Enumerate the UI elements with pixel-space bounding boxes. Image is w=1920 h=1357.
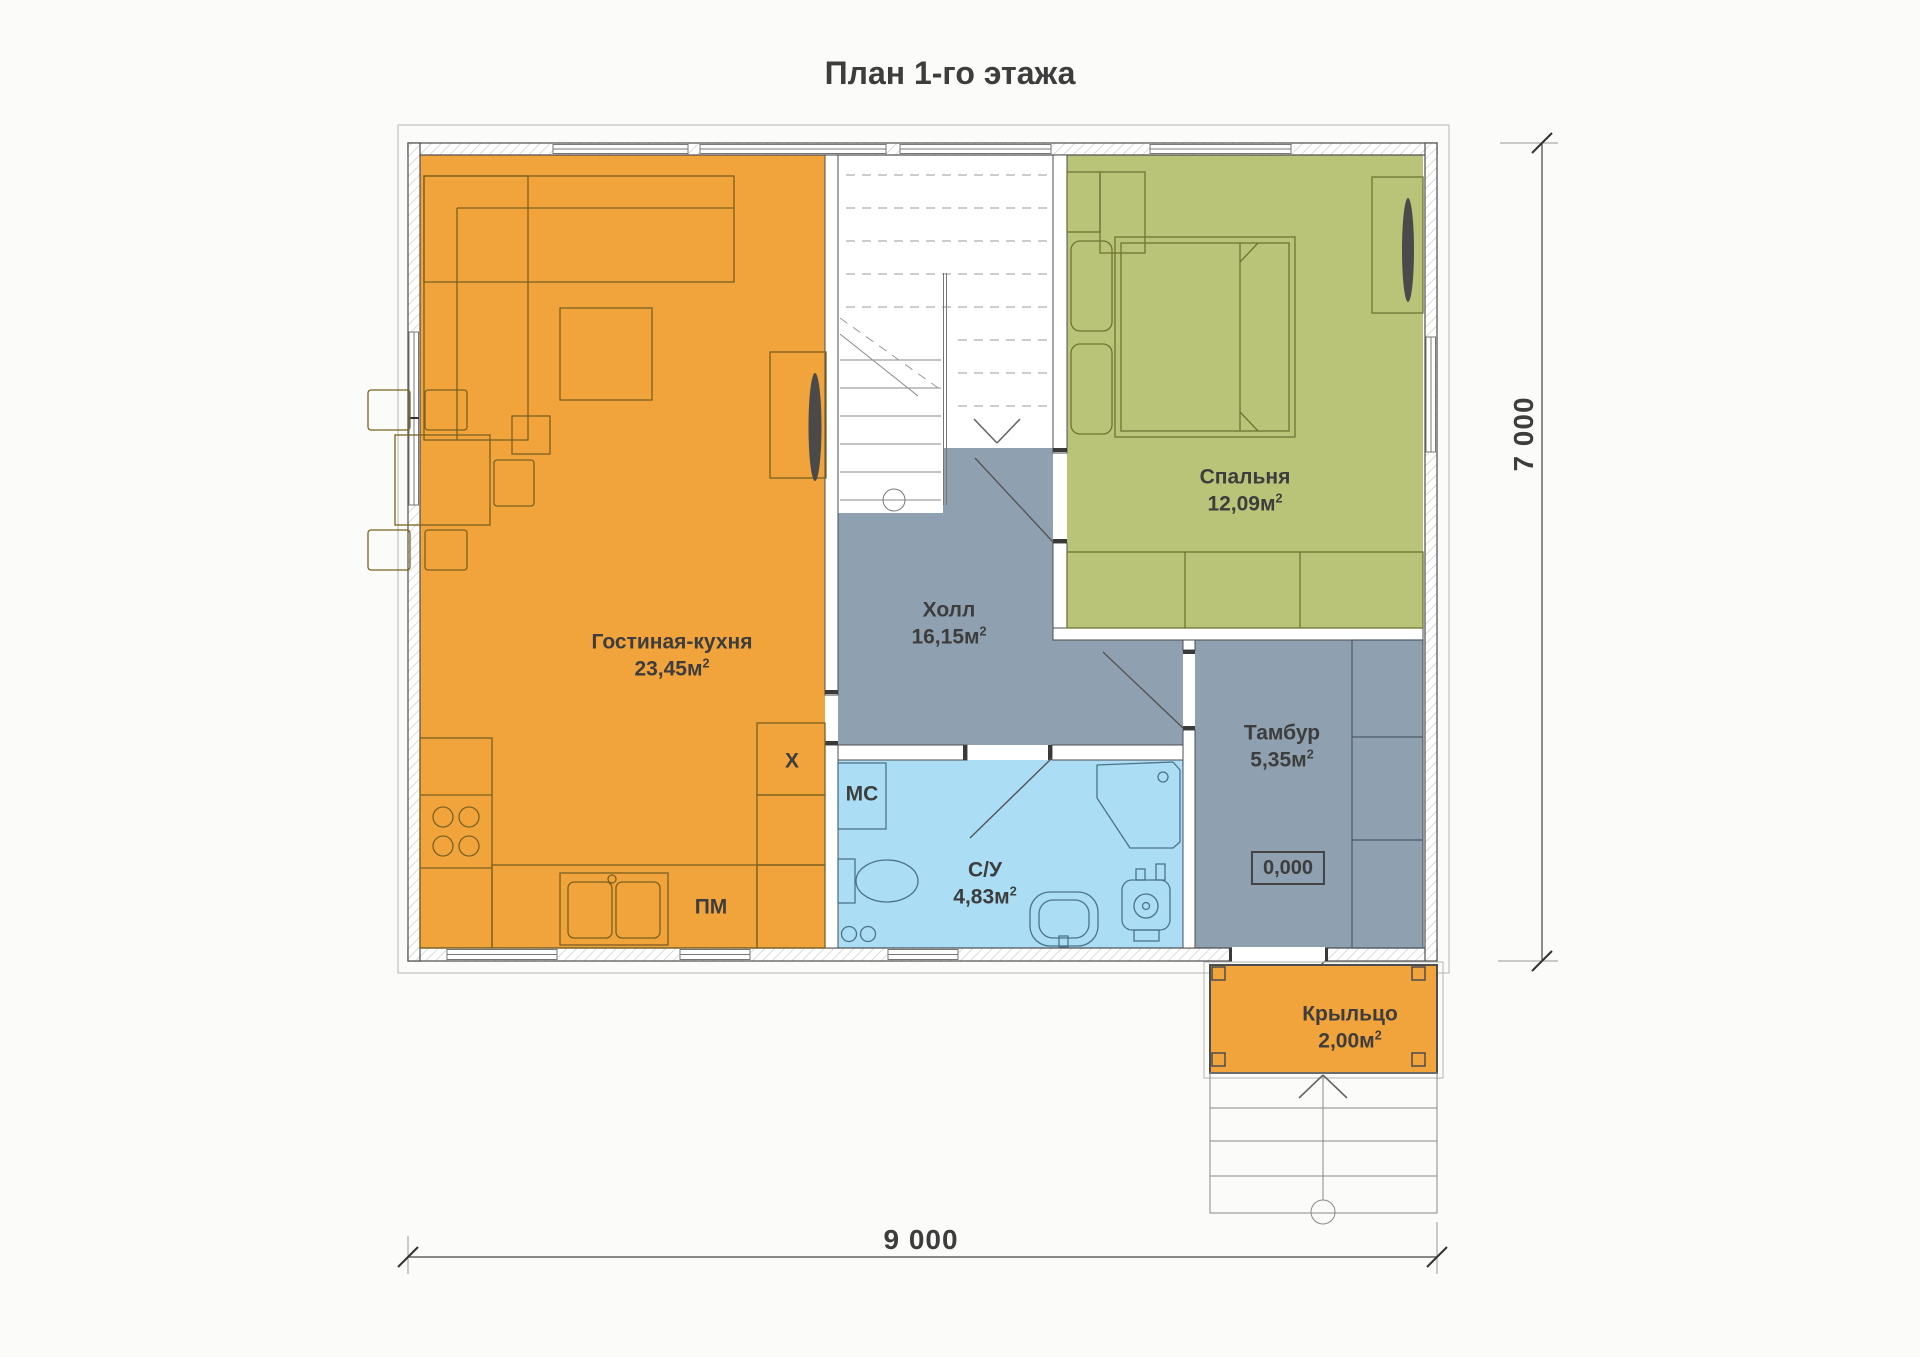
tv (809, 373, 822, 481)
chair (368, 390, 410, 430)
fridge-label: X (785, 747, 799, 774)
bathroom-label: С/У 4,83м2 (953, 857, 1016, 912)
washing-machine-label: МС (846, 780, 879, 807)
vestibule-label: Тамбур 5,35м2 (1244, 720, 1320, 775)
floor-plan-drawing (0, 0, 1920, 1357)
porch-label: Крыльцо 2,00м2 (1302, 1001, 1398, 1056)
front-door-opening (1229, 947, 1328, 962)
bathroom-room (838, 760, 1183, 948)
porch-post (1212, 967, 1225, 980)
floor-plan-page: План 1-го этажа Гостиная-кухня 23,45м2 Х… (0, 0, 1920, 1357)
depth-dimension: 7 000 (1506, 396, 1542, 471)
level-mark: 0,000 (1251, 851, 1325, 885)
living-kitchen-room (420, 155, 825, 948)
bedroom-label: Спальня 12,09м2 (1200, 464, 1291, 519)
entrance-steps (1210, 1073, 1437, 1224)
living-kitchen-label: Гостиная-кухня 23,45м2 (592, 629, 753, 684)
dishwasher-label: ПМ (695, 893, 728, 920)
porch-post (1412, 1053, 1425, 1066)
page-title: План 1-го этажа (825, 53, 1076, 95)
bedroom-tv (1402, 198, 1414, 302)
porch-post (1212, 1053, 1225, 1066)
hall-label: Холл 16,15м2 (911, 597, 986, 652)
width-dimension: 9 000 (883, 1222, 958, 1258)
vestibule-room (1195, 640, 1423, 948)
porch-post (1412, 967, 1425, 980)
chair (368, 530, 410, 570)
